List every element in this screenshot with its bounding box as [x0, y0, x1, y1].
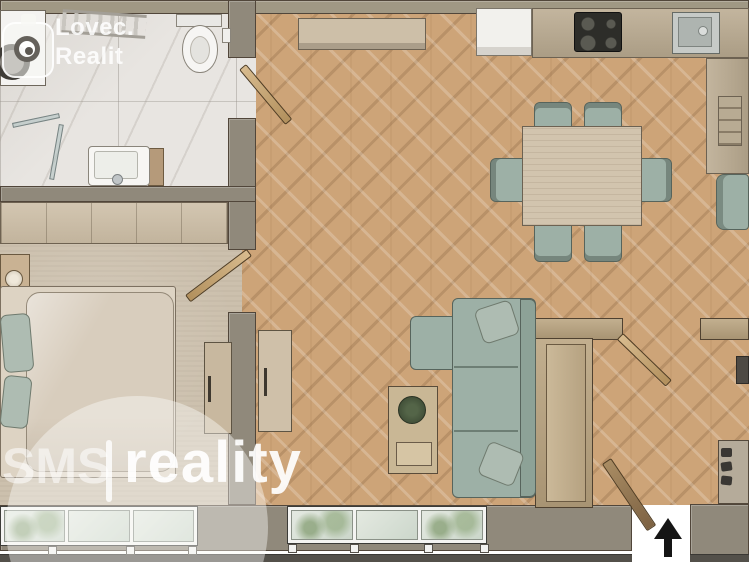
pillow-icon — [0, 313, 34, 373]
logo-line-1: Lovec. — [55, 14, 134, 43]
cabinet-handle — [264, 368, 267, 396]
dining-table-icon — [522, 126, 642, 226]
sofa-seam — [454, 366, 518, 368]
hallway-partition-panel — [546, 344, 586, 502]
window-post — [350, 544, 359, 553]
hallway-partition-cap — [535, 318, 623, 340]
agency-logo-text: Lovec. Realit — [55, 14, 134, 72]
window-post — [288, 544, 297, 553]
cooktop-icon — [574, 12, 622, 52]
built-in-closet — [0, 202, 228, 244]
plant-icon — [398, 396, 426, 424]
wall-bathroom-bedroom — [0, 186, 256, 202]
facade-baseline-right — [690, 554, 749, 562]
sofa-seam — [454, 430, 518, 432]
fridge-icon — [476, 8, 532, 56]
window-post — [480, 544, 489, 553]
window-pane — [421, 510, 483, 540]
toilet-bowl — [190, 36, 210, 64]
dining-chair-icon — [584, 220, 622, 262]
vanity-shelf — [148, 148, 164, 186]
up-arrow-stem — [664, 539, 672, 557]
sideboard-icon — [298, 18, 426, 50]
armchair-icon — [716, 174, 749, 230]
floor-plan-render: Lovec. Realit SMS reality — [0, 0, 749, 562]
dining-chair-icon — [534, 220, 572, 262]
window-pane — [356, 510, 418, 540]
logo-notch — [21, 14, 36, 26]
window-pane — [291, 510, 353, 540]
wall-bathroom-right-lower — [228, 118, 256, 250]
wall-hallway-top-right — [700, 318, 749, 340]
sofa-backrest — [520, 299, 536, 497]
sink-faucet — [112, 174, 123, 185]
shoe-icon — [721, 475, 733, 485]
living-room-window — [287, 506, 487, 544]
logo-dot — [25, 47, 33, 55]
watermark-brand: SMS — [2, 436, 110, 496]
up-arrow-head — [654, 518, 682, 539]
kitchen-drawers — [718, 96, 742, 146]
tray — [396, 442, 432, 466]
wall-bathroom-right-upper — [228, 0, 256, 58]
shoe-icon — [720, 461, 732, 471]
wall-console — [736, 356, 749, 384]
logo-line-2: Realit — [55, 43, 134, 72]
entrance-arrow-icon — [653, 518, 683, 560]
kitchen-faucet — [698, 26, 708, 36]
target-logo-icon — [2, 22, 54, 78]
pillow-icon — [0, 375, 33, 430]
wardrobe-handle — [208, 376, 211, 402]
wall-entry-right — [690, 504, 749, 556]
watermark-name: reality — [124, 428, 302, 498]
window-post — [424, 544, 433, 553]
flush-plate — [222, 28, 231, 43]
shoe-icon — [721, 448, 732, 457]
watermark-divider — [106, 440, 112, 502]
